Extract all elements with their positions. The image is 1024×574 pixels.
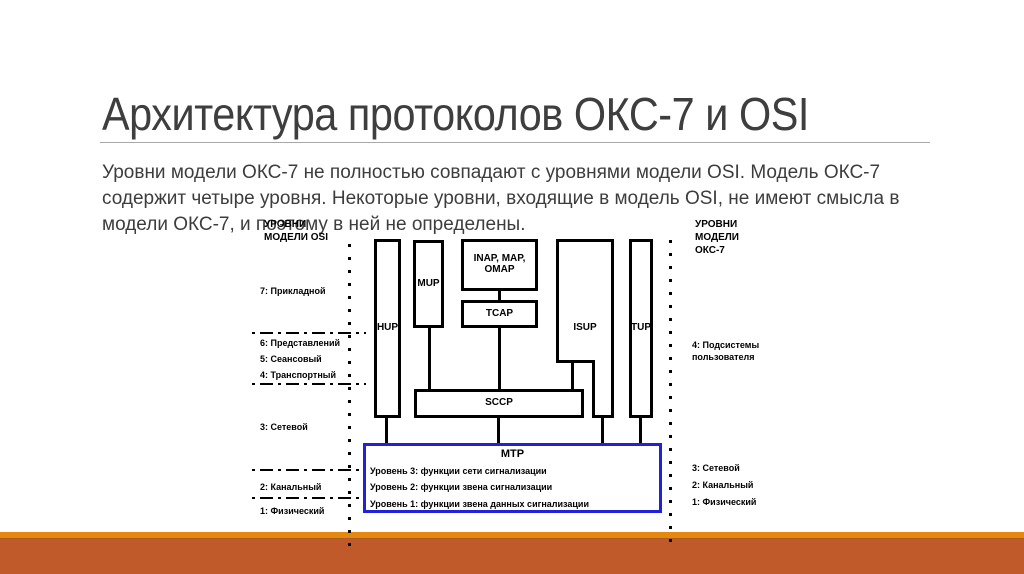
osi-level-6-label: 6: Представлений [260,338,340,349]
connector-inap-tcap [498,291,501,300]
osi-level-7-label: 7: Прикладной [260,286,326,297]
osi-column-header: УРОВНИ МОДЕЛИ OSI [264,218,328,244]
oks-level-3-label: 3: Сетевой [692,463,740,474]
hup-label: HUP [374,322,401,334]
sccp-label: SCCP [414,397,584,409]
connector-isup-mtp [601,418,604,443]
mtp-level-2-text: Уровень 2: функции звена сигнализации [370,482,552,493]
osi-level-3-label: 3: Сетевой [260,422,308,433]
right-dotted-boundary [669,240,672,546]
tup-label: TUP [629,322,653,334]
inap-label-line-2: OMAP [461,264,538,275]
connector-tup-mtp [639,418,642,443]
oks-level-2-label: 2: Канальный [692,480,753,491]
osi-level-2-label: 2: Канальный [260,482,321,493]
title-divider [100,142,930,143]
box-isup-upper [556,239,614,363]
body-text-line-2: содержит четыре уровня. Некоторые уровни… [102,186,899,212]
tcap-label: TCAP [461,308,538,320]
oks-level-4-label: 4: Подсистемы пользователя [692,339,772,363]
left-dotted-boundary [348,244,351,546]
box-isup-step-edge [556,360,595,363]
connector-sccp-mtp [497,418,500,443]
oks-header-line-3: ОКС-7 [695,244,739,257]
oks-header-line-1: УРОВНИ [695,218,739,231]
connector-tcap-sccp [498,328,501,389]
mtp-level-1-text: Уровень 1: функции звена данных сигнализ… [370,499,589,510]
box-isup-lower [592,363,614,418]
inap-map-omap-label: INAP, MAP, OMAP [461,253,538,275]
mtp-label: МТР [363,448,662,460]
inap-label-line-1: INAP, MAP, [461,253,538,264]
osi-level-5-label: 5: Сеансовый [260,354,322,365]
oks-header-line-2: МОДЕЛИ [695,231,739,244]
mtp-level-3-text: Уровень 3: функции сети сигнализации [370,466,547,477]
body-text-line-1: Уровни модели ОКС-7 не полностью совпада… [102,160,880,186]
mup-label: MUP [413,278,444,290]
connector-hup-mtp [385,418,388,443]
osi-level-4-label: 4: Транспортный [260,370,336,381]
osi-header-line-2: МОДЕЛИ OSI [264,231,328,244]
oks-level-1-label: 1: Физический [692,497,756,508]
connector-isup-sccp [571,363,574,389]
slide-title: Архитектура протоколов ОКС-7 и OSI [102,90,809,138]
connector-mup-sccp [428,328,431,389]
osi-header-line-1: УРОВНИ [264,218,328,231]
osi-level-1-label: 1: Физический [260,506,324,517]
slide: Архитектура протоколов ОКС-7 и OSI Уровн… [0,0,1024,574]
isup-label: ISUP [556,322,614,334]
footer-accent-bar [0,538,1024,574]
oks-column-header: УРОВНИ МОДЕЛИ ОКС-7 [695,218,739,257]
